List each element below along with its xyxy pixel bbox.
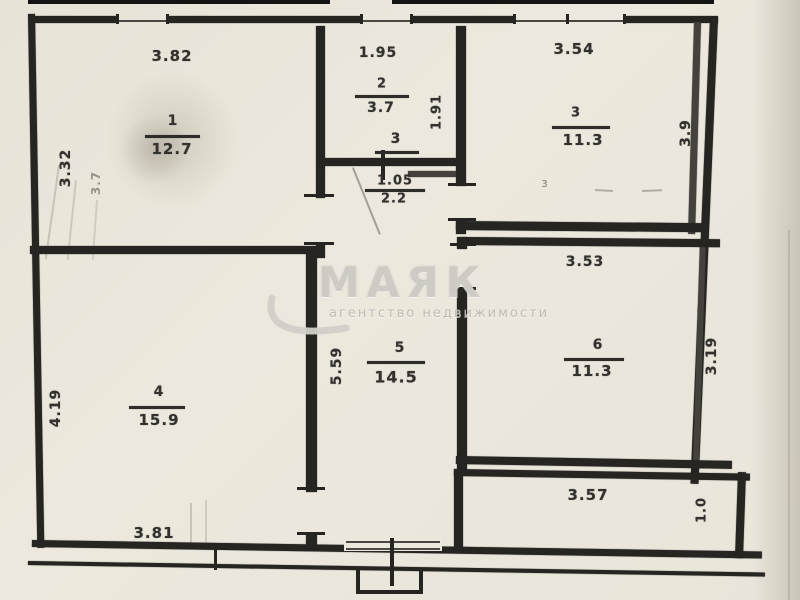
room3-small-mark: з [541,176,548,190]
hall-fraction-line [375,151,419,154]
wall-room2-bottom [318,158,462,166]
scan-streak [190,503,192,548]
watermark-swoosh-icon [264,292,356,346]
wall-balcony-top [454,469,750,481]
wall-room4-room5-divider [306,250,317,492]
scan-dash [595,189,613,192]
room6-number: 6 [593,337,604,353]
room2-area-label: 3.7 [367,100,395,116]
window-jamb [166,14,169,24]
wall-outer-top [30,16,118,23]
wall-stub [390,538,394,586]
window-room3 [515,20,625,22]
hall-dim2-label: 2.2 [381,192,407,207]
room1-ghost-dim-label: 3.7 [89,171,103,195]
window-jamb [623,14,626,24]
wall-room1-bottom [30,246,324,254]
floor-plan-scan: МАЯК агентство недвижимости [0,0,800,600]
wall-balcony-left [454,469,463,549]
window-room2 [362,20,412,22]
room5-number: 5 [395,340,406,356]
room1-fraction-line [145,135,200,138]
door-jamb [297,487,325,490]
wall-room3-bottom [456,221,708,232]
scan-streak [205,500,207,548]
room5-height-label: 5.59 [329,347,345,386]
wall-outer-top [168,16,362,23]
window-room1 [118,20,168,22]
door-jamb [304,242,334,245]
balcony-height-label: 1.0 [695,497,710,523]
door-jamb [297,532,325,535]
window-jamb [116,14,119,24]
door-jamb [448,183,476,186]
wall-room6-top [460,237,720,247]
watermark-subtitle: агентство недвижимости [329,306,549,321]
door-jamb [448,218,476,221]
window-jamb [513,14,516,24]
wall-outer-left [28,14,44,548]
hall-dim1-label: 1.05 [377,174,413,189]
room6-area-label: 11.3 [571,362,612,380]
window-jamb [566,14,569,24]
balcony-width-label: 3.57 [567,486,608,504]
wall-corridor-right [456,26,466,186]
room6-width-label: 3.53 [566,254,605,270]
room2-number: 2 [377,77,387,92]
wall-room4-room5-divider [306,534,317,548]
porch-bottom [356,590,423,594]
hall-number: 3 [391,131,402,147]
wall-room1-right [316,26,325,198]
room3-area-label: 11.3 [562,131,603,149]
room3-number: 3 [571,106,581,121]
room4-number: 4 [154,384,165,400]
door-jamb [304,194,334,197]
page-edge-shading [752,0,800,600]
room3-height-label: 3.9 [678,119,694,147]
wall-outer-top [625,16,718,23]
wall-outer-top [412,16,515,23]
room5-area-label: 14.5 [374,368,417,387]
room2-height-label: 1.91 [430,94,445,130]
window-jamb [360,14,363,24]
room5-fraction-line [367,361,425,364]
room1-area-label: 12.7 [151,140,192,158]
room2-fraction-line [355,95,409,98]
window-jamb [410,14,413,24]
wall-outer-bottom-outer [28,561,765,577]
room4-fraction-line [129,406,185,409]
room3-fraction-line [552,126,610,129]
room1-number: 1 [168,113,179,129]
room1-height-label: 3.32 [58,149,74,188]
room3-width-label: 3.54 [553,40,594,58]
scan-dash [642,189,662,192]
room6-height-label: 3.19 [704,337,720,376]
door-jamb [450,243,476,246]
room1-width-label: 3.82 [151,47,192,65]
room2-width-label: 1.95 [359,45,398,61]
wall-stub [214,544,217,570]
wall-balcony-right [735,472,746,558]
room4-width-label: 3.81 [133,524,174,542]
scan-edge-top-right [392,0,714,4]
room4-height-label: 4.19 [48,389,64,428]
scan-edge-top-left [28,0,330,4]
room4-area-label: 15.9 [138,411,179,429]
room6-fraction-line [564,358,624,361]
